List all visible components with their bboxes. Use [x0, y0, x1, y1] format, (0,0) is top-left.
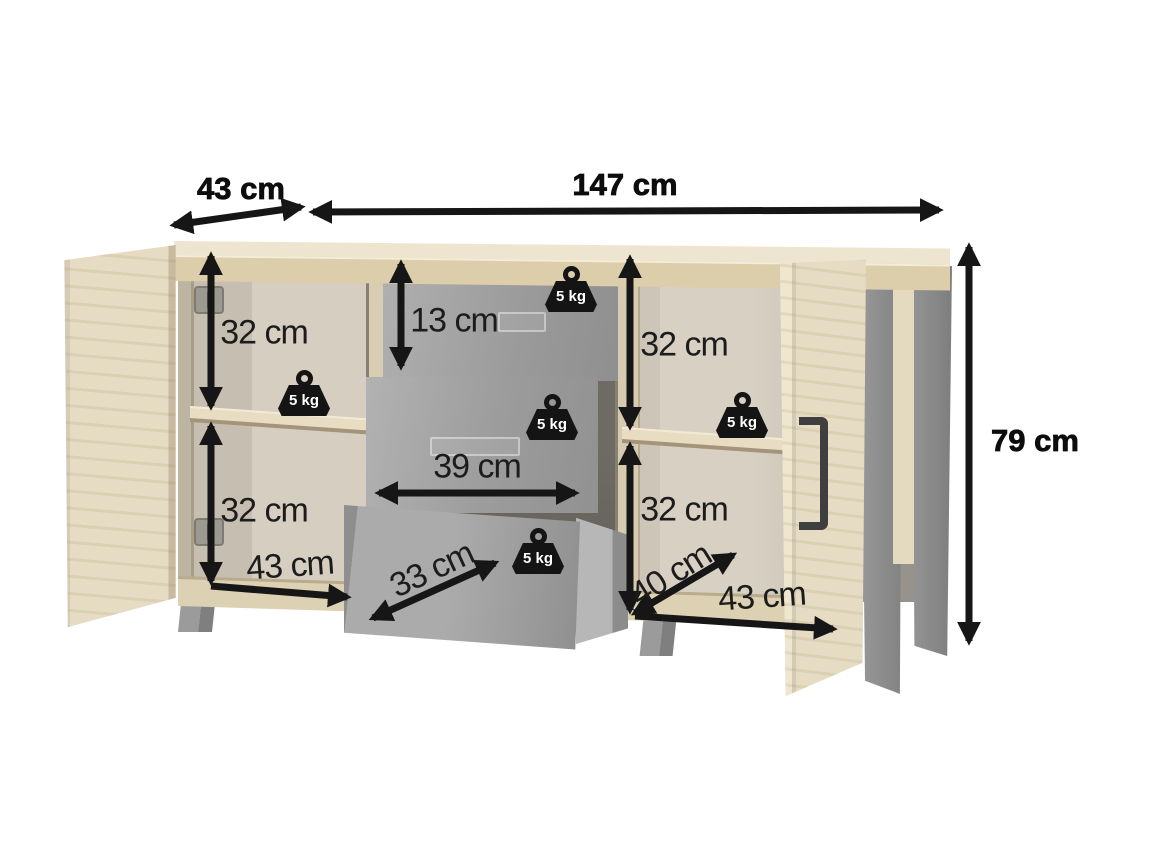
- dim-label-left-upper: 32 cm: [220, 314, 308, 353]
- dim-label-left-inner-depth: 43 cm: [245, 543, 335, 588]
- arrow-left-inner-depth: [211, 586, 347, 597]
- dim-label-right-upper: 32 cm: [640, 326, 728, 365]
- dim-label-drawer-height: 13 cm: [410, 302, 498, 341]
- dimension-arrows: [0, 0, 1149, 862]
- dim-label-width: 147 cm: [572, 167, 677, 203]
- dim-label-left-lower: 32 cm: [220, 492, 308, 531]
- dim-label-top-depth: 43 cm: [197, 171, 285, 207]
- dim-label-height: 79 cm: [991, 423, 1079, 459]
- dim-label-right-inner-width: 43 cm: [717, 574, 807, 619]
- dim-label-right-lower: 32 cm: [640, 491, 728, 530]
- dim-label-drawer-width: 39 cm: [433, 448, 521, 487]
- furniture-dimension-diagram: 5 kg 5 kg 5 kg 5 kg 5 kg: [0, 0, 1149, 862]
- arrow-width: [313, 210, 939, 212]
- arrow-top-depth: [174, 207, 301, 225]
